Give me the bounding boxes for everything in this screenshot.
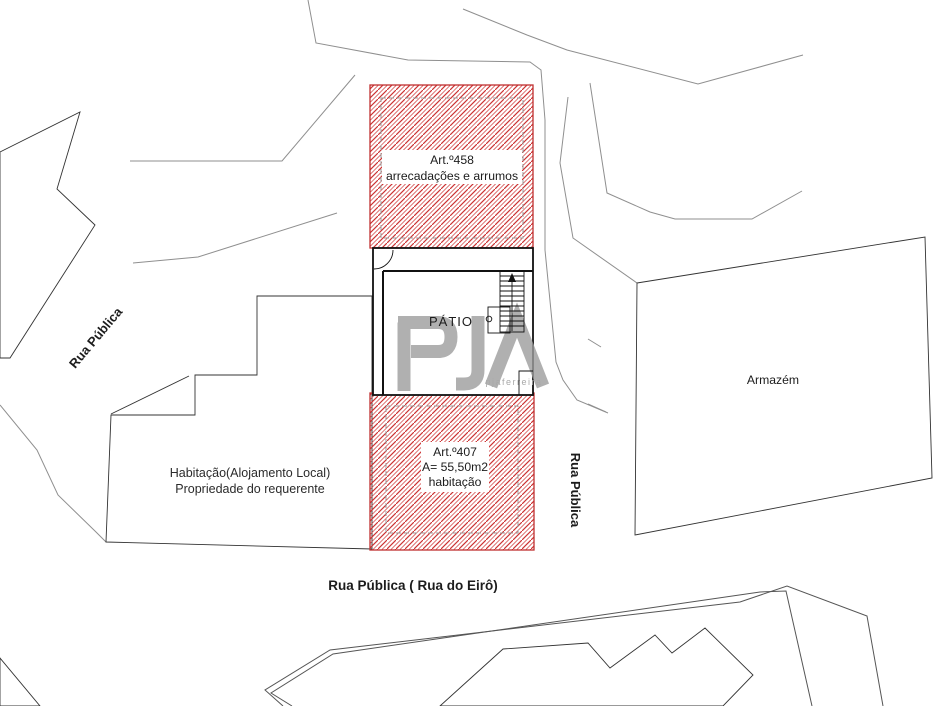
fence-tick-2 [588, 404, 606, 412]
dwelling-label-line3: habitação [429, 475, 482, 489]
road-edges [265, 586, 883, 706]
patio-label: PÁTIO [429, 314, 473, 329]
storage-annex-label-line2: arrecadações e arrumos [386, 169, 518, 183]
street-label-south: Rua Pública ( Rua do Eirô) [328, 578, 498, 593]
neighbor-buildings-south [440, 628, 753, 706]
boundary-line-street-right [560, 97, 637, 283]
site-plan-drawing: Habitação(Alojamento Local) Propriedade … [0, 0, 940, 706]
road-edge-inner [271, 591, 812, 706]
dwelling-label-line2: A= 55,50m2 [422, 460, 488, 474]
street-label-left: Rua Pública [66, 304, 126, 371]
dwelling-area: Art.º407 A= 55,50m2 habitação [370, 393, 534, 550]
main-house-ramp-line [111, 376, 189, 414]
main-house-label-line2: Propriedade do requerente [175, 482, 324, 496]
warehouse-label: Armazém [747, 373, 799, 387]
boundary-line-southwest [0, 405, 106, 542]
street-label-right: Rua Pública [568, 453, 583, 528]
site-plan: Habitação(Alojamento Local) Propriedade … [0, 0, 940, 706]
neighbor-parcel-northwest [0, 112, 95, 358]
storage-annex-area: Art.º458 arrecadações e arrumos [370, 85, 533, 248]
main-house-building: Habitação(Alojamento Local) Propriedade … [106, 296, 372, 549]
boundary-line-northeast [463, 9, 803, 84]
main-house-label-line1: Habitação(Alojamento Local) [170, 466, 331, 480]
storage-annex-label-line1: Art.º458 [430, 153, 474, 167]
boundary-line-west-mid [133, 213, 337, 263]
boundary-line-west-upper [130, 75, 355, 161]
main-house-outline [106, 296, 372, 549]
dwelling-label-line1: Art.º407 [433, 445, 477, 459]
fence-tick-1 [588, 339, 601, 347]
watermark-subtext: pjaferreira [485, 377, 542, 387]
neighbor-parcel-southwest [0, 658, 40, 706]
boundary-line-east [590, 83, 802, 219]
warehouse-building: Armazém [635, 237, 932, 535]
road-edge-outer [265, 586, 883, 706]
